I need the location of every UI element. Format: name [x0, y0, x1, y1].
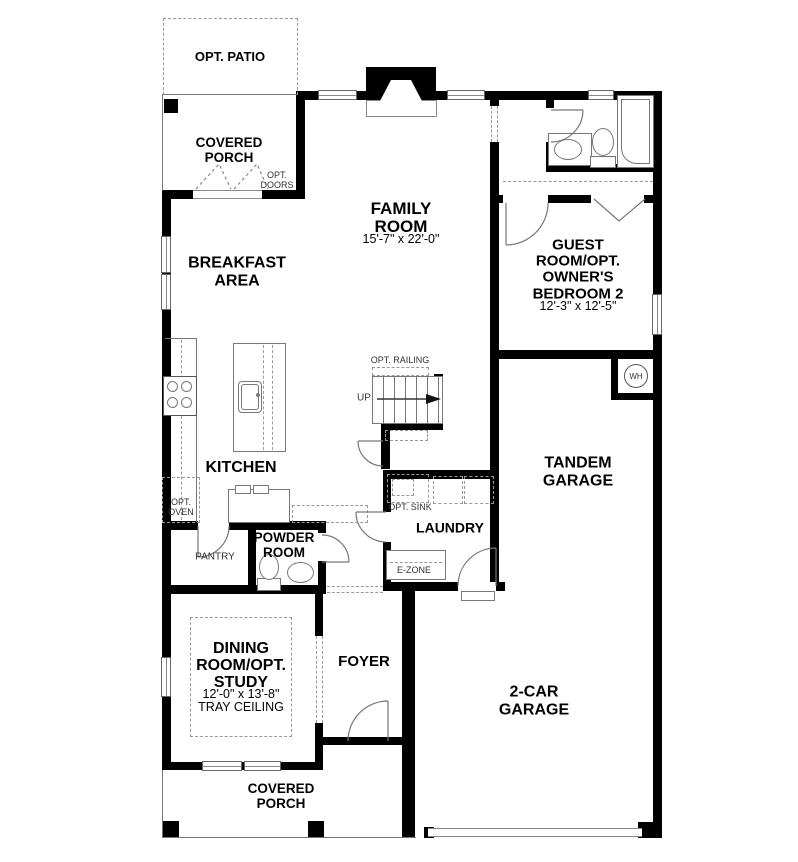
island-dashed: [272, 345, 274, 450]
opt-oven-label: OPT. OVEN: [168, 498, 194, 518]
water-heater-label: WH: [629, 372, 642, 381]
laundry-label: LAUNDRY: [416, 520, 484, 535]
kitchen-counter: [228, 489, 290, 523]
cased-opening-dashed: [491, 106, 493, 142]
wall: [490, 91, 499, 591]
porch-post: [164, 99, 178, 113]
wall: [381, 421, 390, 469]
stove-burner: [181, 381, 192, 392]
up-label: UP: [357, 393, 371, 404]
stove-burner: [167, 397, 178, 408]
opt-doors-opening: [193, 190, 262, 199]
window: [244, 761, 281, 771]
wall: [315, 585, 323, 636]
porch-edge: [162, 94, 298, 95]
staircase: [372, 376, 443, 424]
cased-opening-dashed: [327, 592, 383, 594]
opt-sink-basin: [392, 479, 414, 496]
pantry-label: PANTRY: [195, 552, 235, 563]
sink-fixture: [287, 562, 314, 583]
washer-outline: [433, 476, 463, 504]
cased-opening-dashed: [316, 636, 318, 723]
garage-door: [428, 828, 642, 837]
kitchen-label: KITCHEN: [205, 459, 276, 477]
water-heater: WH: [624, 364, 648, 388]
opt-sink-label: OPT. SINK: [388, 503, 432, 513]
powder-door-swing: [322, 535, 349, 562]
counter-edge: [165, 338, 196, 339]
wall: [653, 91, 662, 838]
garage-entry-opening: [458, 582, 496, 591]
toilet-bowl: [592, 128, 614, 156]
opt-railing-label: OPT. RAILING: [371, 356, 430, 366]
front-door-swing: [348, 701, 388, 741]
opt-counter: [292, 505, 368, 523]
stove-burner: [167, 381, 178, 392]
covered-porch-top-label: COVERED PORCH: [196, 136, 263, 166]
cased-opening-dashed: [327, 586, 383, 588]
wall: [162, 762, 323, 770]
cased-opening-dashed: [322, 636, 324, 723]
window: [588, 90, 614, 100]
opt-doors-label: OPT. DOORS: [260, 171, 293, 191]
opt-patio-label: OPT. PATIO: [195, 50, 265, 64]
guest-room-dims: 12'-3" x 12'-5": [540, 300, 617, 314]
fireplace-hearth: [366, 100, 437, 117]
guest-room-label: GUEST ROOM/OPT. OWNER'S BEDROOM 2: [533, 238, 624, 303]
dining-room-note: TRAY CEILING: [198, 701, 284, 715]
family-room-label: FAMILY ROOM: [371, 200, 432, 236]
porch-edge: [162, 770, 163, 838]
pantry-door-opening: [198, 521, 229, 530]
cased-opening-dashed: [497, 106, 499, 142]
two-car-garage-label: 2-CAR GARAGE: [499, 683, 569, 718]
opt-railing-outline: [372, 367, 429, 376]
ezone-label: E-ZONE: [397, 566, 431, 576]
shower-inner: [621, 99, 650, 164]
understairs-closet: [385, 430, 428, 441]
dryer-outline: [464, 476, 494, 504]
kitchen-sink-basin: [253, 485, 269, 494]
toilet-tank: [590, 156, 616, 168]
porch-edge: [162, 94, 163, 191]
closet-shelf: [503, 181, 653, 183]
opt-doors-swing: [196, 164, 268, 189]
wall: [296, 91, 305, 198]
window: [202, 761, 242, 771]
breakfast-area-label: BREAKFAST AREA: [188, 254, 286, 289]
door-opening: [503, 195, 548, 203]
powder-room-label: POWDER ROOM: [254, 531, 315, 561]
floor-plan: WH OPT. PATIO COVERED PORCH OPT. DOORS F…: [0, 0, 798, 862]
dining-room-label: DINING ROOM/OPT. STUDY: [196, 641, 286, 691]
kitchen-sink-basin: [235, 485, 251, 494]
garage-step: [461, 591, 495, 601]
tandem-garage-label: TANDEM GARAGE: [543, 454, 613, 489]
stove-burner: [181, 397, 192, 408]
closet-door-opening: [591, 195, 644, 203]
porch-post: [308, 821, 324, 837]
island-dashed: [263, 345, 265, 450]
porch-edge: [162, 837, 416, 838]
wall: [402, 585, 415, 838]
wall: [611, 393, 659, 400]
window: [318, 90, 357, 100]
window: [447, 90, 485, 100]
wall: [162, 585, 325, 594]
porch-post: [163, 821, 179, 837]
foyer-label: FOYER: [338, 654, 390, 671]
understairs-door-swing: [358, 441, 383, 466]
window: [652, 294, 662, 335]
window: [161, 236, 171, 273]
family-room-dims: 15'-7" x 22'-0": [363, 233, 440, 247]
wall: [490, 350, 662, 359]
covered-porch-bottom-label: COVERED PORCH: [248, 782, 315, 812]
window: [161, 274, 171, 310]
sink-fixture: [554, 139, 582, 160]
island-sink-basin: [241, 384, 259, 410]
ezone-dashed: [390, 562, 442, 564]
faucet: [256, 393, 260, 397]
wall: [315, 737, 409, 745]
fireplace: [366, 67, 436, 101]
wall: [546, 91, 554, 108]
window: [161, 657, 171, 697]
